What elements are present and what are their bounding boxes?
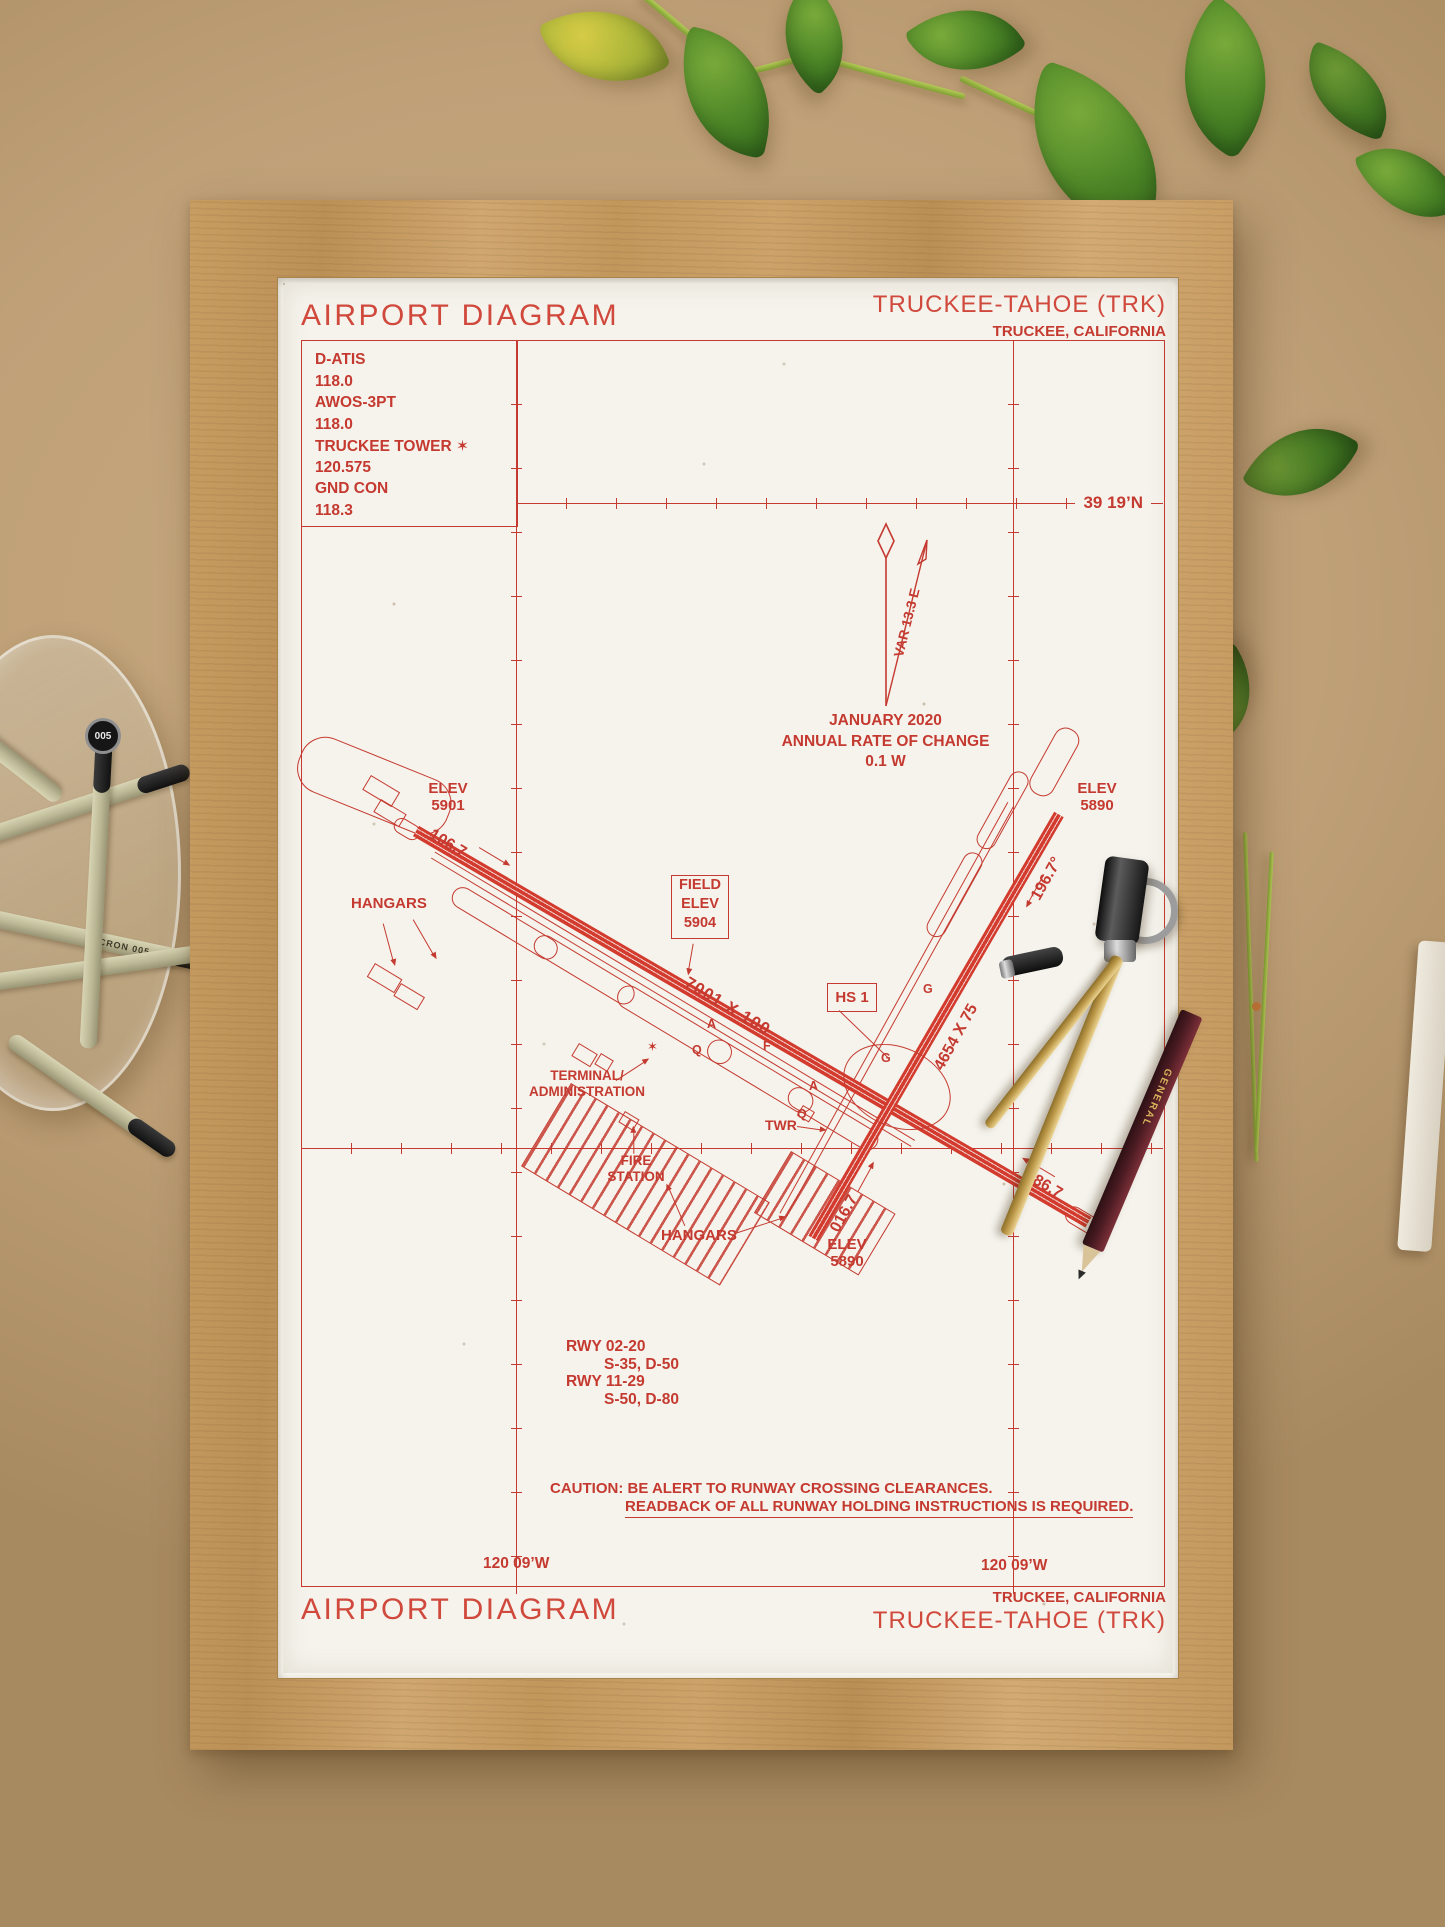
taxiway-letter: Q bbox=[692, 1043, 702, 1057]
white-pencil-edge bbox=[1397, 940, 1445, 1252]
pen-cap-label: 005 bbox=[85, 718, 121, 754]
taxiway-letter: A bbox=[809, 1079, 818, 1093]
comm-frequency-box: D-ATIS 118.0 AWOS-3PT 118.0 TRUCKEE TOWE… bbox=[301, 340, 518, 527]
terminal-label: TERMINAL/ ADMINISTRATION bbox=[526, 1068, 648, 1099]
field-elev-line: FIELD bbox=[672, 876, 728, 895]
poster-title-top: AIRPORT DIAGRAM bbox=[301, 299, 619, 333]
fire-line: FIRE bbox=[603, 1153, 669, 1169]
airport-name-top: TRUCKEE-TAHOE (TRK) bbox=[873, 291, 1166, 319]
runway-data-line: S-50, D-80 bbox=[604, 1391, 679, 1409]
field-elev-line: ELEV bbox=[672, 895, 728, 914]
plant-node bbox=[1252, 1002, 1261, 1011]
gridline-vertical-west bbox=[516, 340, 517, 1585]
plant-leaf bbox=[1144, 0, 1306, 160]
taxiway-letter: G bbox=[923, 982, 933, 996]
runway-data-line: RWY 02-20 bbox=[566, 1338, 679, 1356]
runway-data-line: RWY 11-29 bbox=[566, 1373, 679, 1391]
elev-label-nw: ELEV 5901 bbox=[413, 780, 483, 814]
field-elev-box: FIELD ELEV 5904 bbox=[671, 875, 729, 939]
terminal-line: ADMINISTRATION bbox=[526, 1084, 648, 1100]
longitude-label-east: 120 09’W bbox=[981, 1557, 1047, 1575]
plant-leaf bbox=[756, 0, 872, 96]
longitude-label-west: 120 09’W bbox=[483, 1555, 549, 1573]
taxiway-letter: Q bbox=[797, 1107, 807, 1121]
variation-date-block: JANUARY 2020 ANNUAL RATE OF CHANGE 0.1 W bbox=[733, 711, 1038, 773]
hangars-label-west: HANGARS bbox=[351, 895, 427, 912]
fire-station-arrow bbox=[633, 1132, 634, 1154]
airport-city-top: TRUCKEE, CALIFORNIA bbox=[993, 323, 1166, 340]
airport-diagram-poster: AIRPORT DIAGRAM TRUCKEE-TAHOE (TRK) TRUC… bbox=[283, 283, 1173, 1673]
comm-line: AWOS-3PT bbox=[315, 394, 396, 412]
hotspot-box: HS 1 bbox=[827, 983, 877, 1012]
north-arrow bbox=[828, 518, 948, 718]
variation-rate: ANNUAL RATE OF CHANGE bbox=[733, 732, 1038, 753]
paper-speckles bbox=[283, 283, 285, 285]
airport-city-bottom: TRUCKEE, CALIFORNIA bbox=[993, 1589, 1166, 1606]
frame-glass: AIRPORT DIAGRAM TRUCKEE-TAHOE (TRK) TRUC… bbox=[278, 278, 1178, 1678]
hangars-label-south: HANGARS bbox=[661, 1227, 737, 1244]
taxiway-letter: F bbox=[763, 1039, 771, 1053]
elev-line: 5901 bbox=[413, 797, 483, 814]
comm-line: D-ATIS bbox=[315, 351, 366, 369]
elev-label-south: ELEV 5890 bbox=[815, 1236, 879, 1270]
latitude-label: 39 19’N bbox=[1075, 493, 1151, 513]
elev-line: 5890 bbox=[815, 1253, 879, 1270]
border-tick bbox=[516, 1576, 518, 1594]
pen-cap bbox=[125, 1115, 179, 1160]
comm-line: 118.0 bbox=[315, 373, 353, 391]
fire-line: STATION bbox=[603, 1169, 669, 1185]
plant-leaf bbox=[1353, 123, 1445, 242]
beacon-star-icon: ✶ bbox=[647, 1039, 658, 1055]
elev-line: 5890 bbox=[1065, 797, 1129, 814]
variation-rate-value: 0.1 W bbox=[733, 752, 1038, 773]
pen-cap-size: 005 bbox=[95, 731, 112, 742]
photo-scene: MICRON 005 005 AIRPORT DIAGRAM TRUCKEE-T… bbox=[0, 0, 1445, 1927]
caution-line1: CAUTION: BE ALERT TO RUNWAY CROSSING CLE… bbox=[550, 1480, 993, 1497]
variation-date: JANUARY 2020 bbox=[733, 711, 1038, 732]
runway-data-block: RWY 02-20 S-35, D-50 RWY 11-29 S-50, D-8… bbox=[566, 1338, 679, 1408]
tower-label: TWR bbox=[765, 1117, 797, 1133]
taxiway-letter: G bbox=[881, 1051, 891, 1065]
taxiway-letter: A bbox=[707, 1017, 716, 1031]
gridline-latitude bbox=[516, 503, 1163, 504]
elev-line: ELEV bbox=[413, 780, 483, 797]
elev-line: ELEV bbox=[815, 1236, 879, 1253]
plant-leaf bbox=[1291, 41, 1405, 141]
comm-line: GND CON bbox=[315, 480, 388, 498]
field-elev-line: 5904 bbox=[672, 914, 728, 933]
comm-line: 118.0 bbox=[315, 416, 353, 434]
picture-frame: AIRPORT DIAGRAM TRUCKEE-TAHOE (TRK) TRUC… bbox=[190, 200, 1233, 1750]
airport-name-bottom: TRUCKEE-TAHOE (TRK) bbox=[873, 1607, 1166, 1635]
plant-leaf bbox=[537, 0, 671, 110]
comm-line: 120.575 bbox=[315, 459, 371, 477]
poster-title-bottom: AIRPORT DIAGRAM bbox=[301, 1593, 619, 1627]
elev-line: ELEV bbox=[1065, 780, 1129, 797]
plant-leaf bbox=[665, 26, 787, 159]
hotspot-label: HS 1 bbox=[835, 989, 868, 1006]
comm-line: TRUCKEE TOWER ✶ bbox=[315, 437, 469, 456]
elev-label-ne: ELEV 5890 bbox=[1065, 780, 1129, 814]
runway-data-line: S-35, D-50 bbox=[604, 1356, 679, 1374]
fire-station-label: FIRE STATION bbox=[603, 1153, 669, 1184]
caution-line2: READBACK OF ALL RUNWAY HOLDING INSTRUCTI… bbox=[625, 1498, 1133, 1518]
comm-line: 118.3 bbox=[315, 502, 353, 520]
plant-leaf bbox=[1241, 401, 1361, 523]
